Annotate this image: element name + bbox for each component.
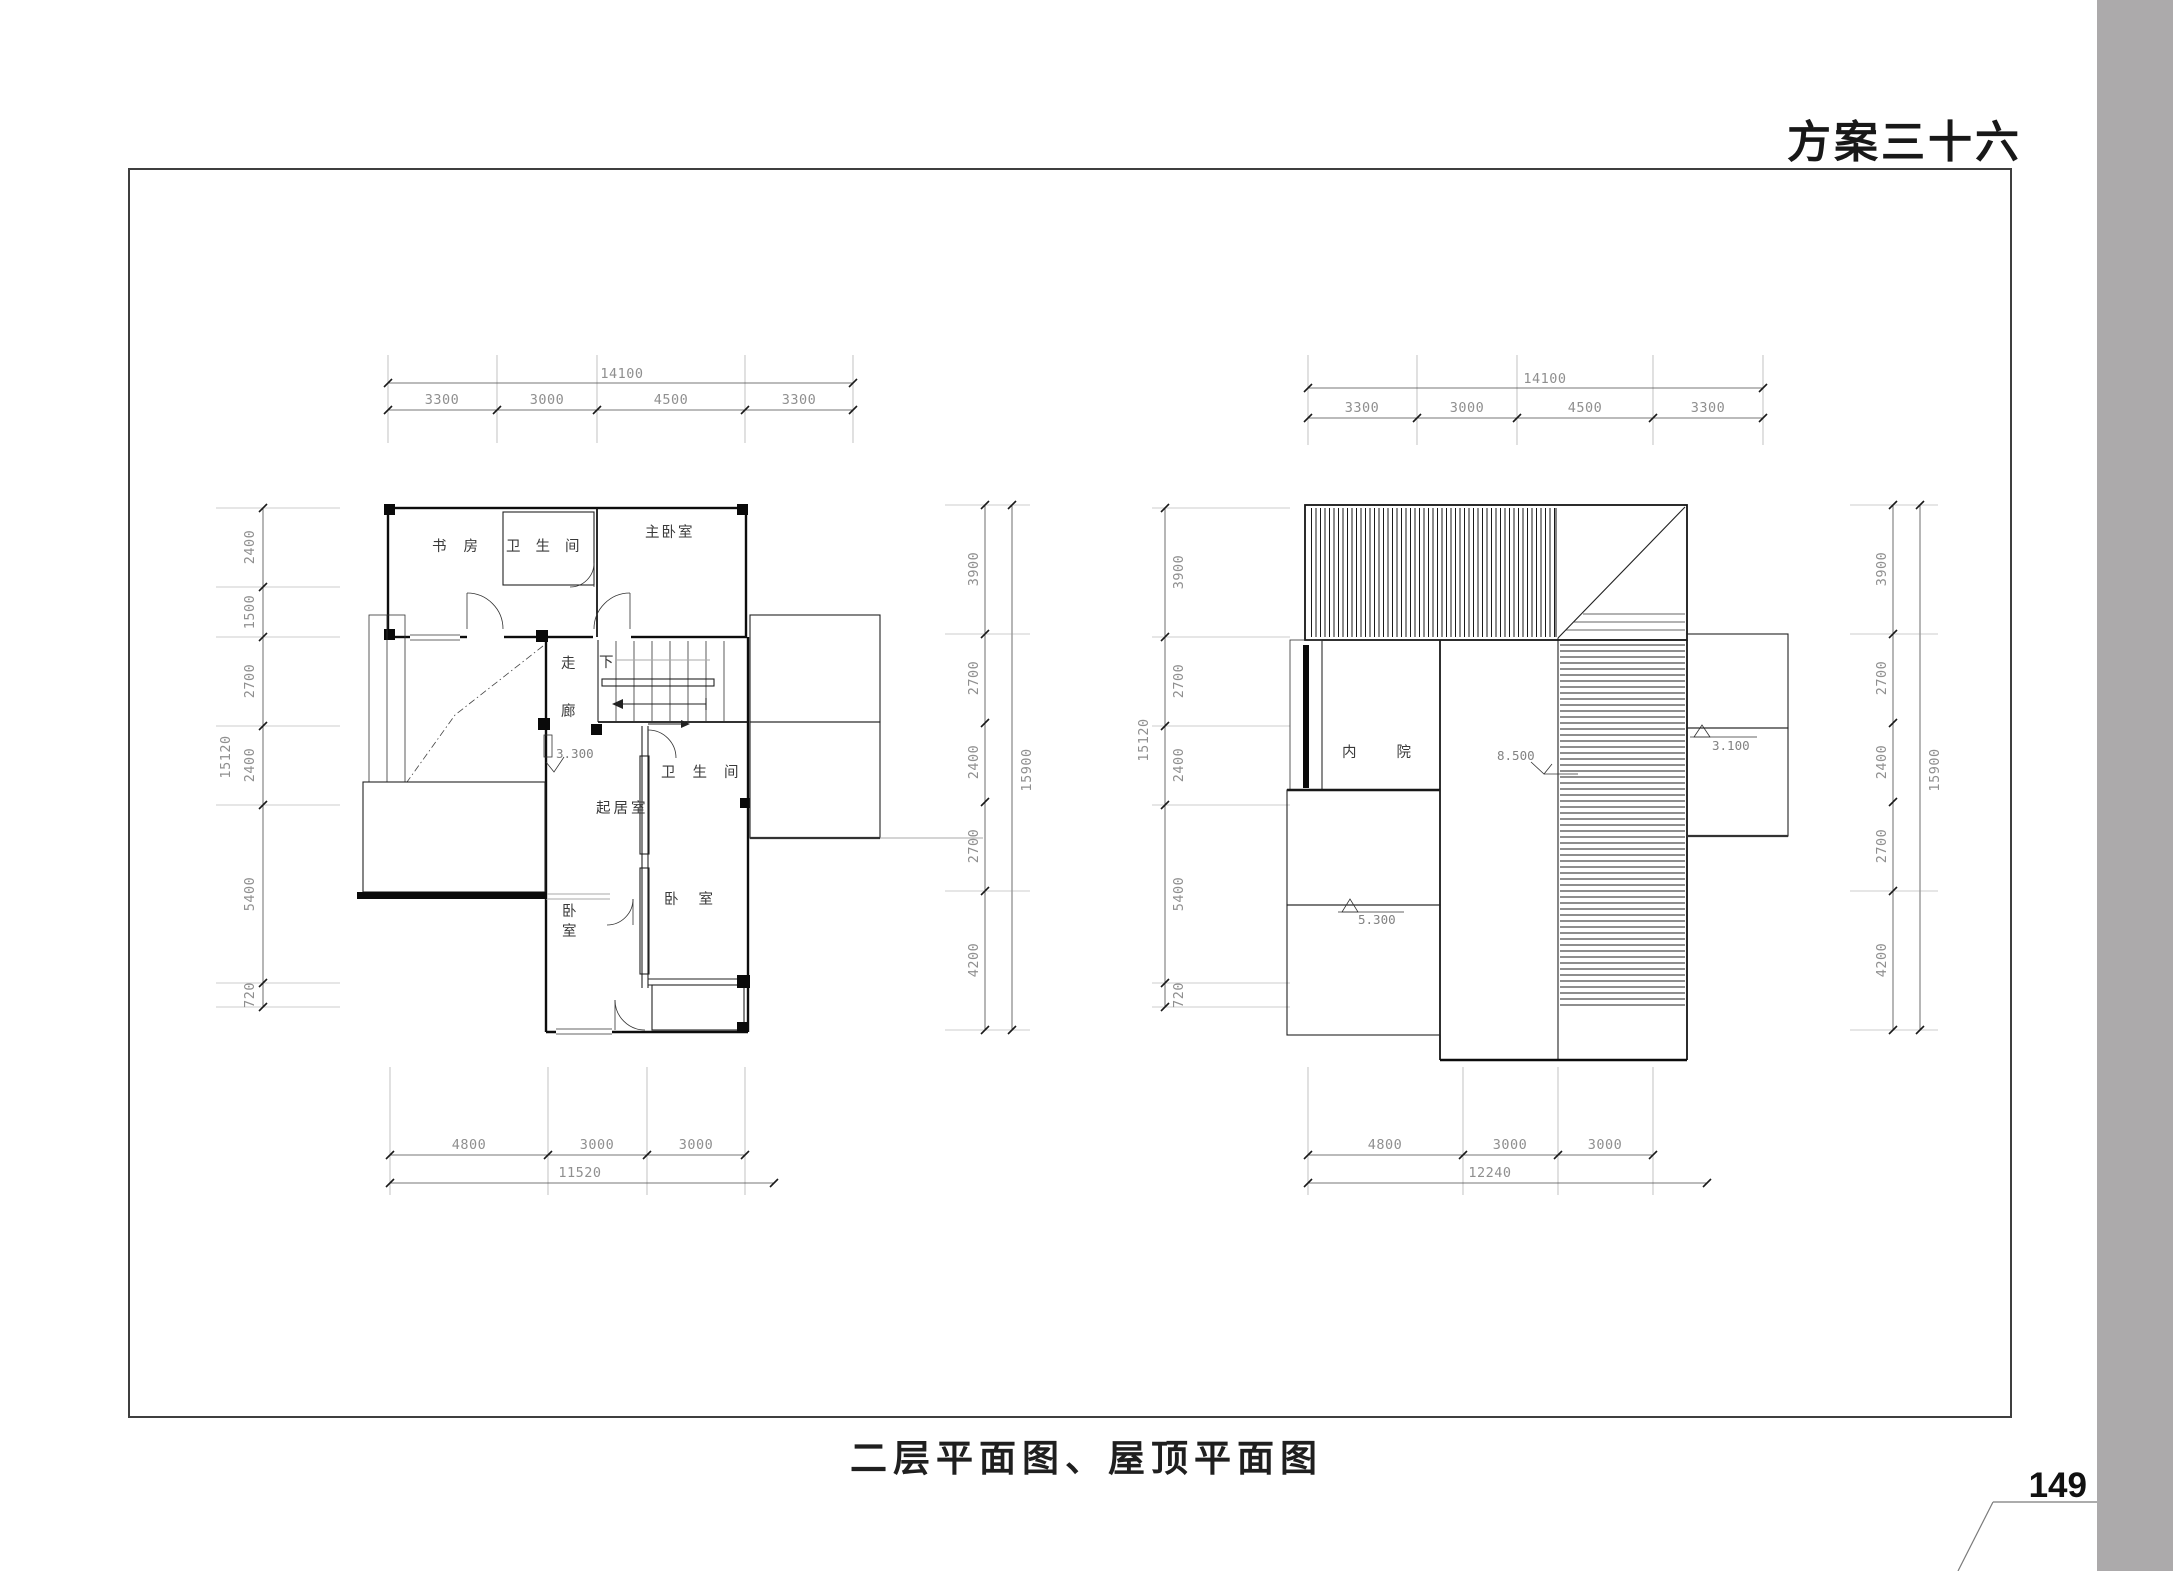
rp-dim-top-seg1: 3000 [1450,400,1485,416]
rp-dims-right: 3900 2700 2400 2700 4200 15900 [1850,501,1943,1034]
fp-room-living: 起居室 [596,800,649,817]
fp-dim-top-total: 14100 [600,366,643,382]
rp-dim-left-seg1: 2700 [1171,664,1187,699]
floor-plan: 14100 3300 3000 4500 3300 2400 1500 2700 [216,355,1035,1195]
drawing-caption: 二层平面图、屋顶平面图 [0,1428,2173,1482]
fp-dim-right-seg4: 4200 [966,943,982,978]
fp-stair-down: 下 [599,655,614,671]
rp-dim-right-seg4: 4200 [1874,943,1890,978]
fp-dim-right-seg0: 3900 [966,552,982,587]
corner-ornament [1958,1502,2097,1571]
fp-dims-bottom: 4800 3000 3000 11520 [386,1067,778,1195]
fp-dim-bot-seg1: 3000 [580,1137,615,1153]
fp-terrace-right [750,615,880,722]
rp-dim-top-seg2: 4500 [1568,400,1603,416]
rp-dim-right-seg0: 3900 [1874,552,1890,587]
rp-dims-bottom: 4800 3000 3000 12240 [1304,1067,1711,1195]
rp-dim-top-seg3: 3300 [1691,400,1726,416]
fp-dim-left-seg1: 1500 [242,595,258,630]
fp-dim-top-seg1: 3000 [530,392,565,408]
fp-dim-bot-seg0: 4800 [452,1137,487,1153]
fp-dims-top: 14100 3300 3000 4500 3300 [384,355,857,443]
fp-dim-top-seg2: 4500 [654,392,689,408]
page-number: 149 [2029,1466,2087,1506]
rp-dim-bot-seg0: 4800 [1368,1137,1403,1153]
rp-dim-left-seg2: 2400 [1171,748,1187,783]
fp-dim-bot-seg2: 3000 [679,1137,714,1153]
fp-room-study: 书房 [432,538,495,555]
fp-bedroom-left-char1: 卧 [562,903,577,920]
rp-roof: 5.300 3.100 8.500 内院 [1287,505,1788,1060]
rp-dim-left-seg3: 5400 [1171,877,1187,912]
drawing-canvas: 14100 3300 3000 4500 3300 2400 1500 2700 [0,0,2173,1571]
fp-dim-left-seg3: 2400 [242,748,258,783]
fp-dim-right-total: 15900 [1019,748,1035,791]
rp-ridge-hatch [1308,508,1556,637]
rp-dim-top-total: 14100 [1523,371,1566,387]
rp-left-slope-hatch [1287,790,1440,905]
fp-level-landing: 3.300 [556,746,594,761]
rp-dim-right-total: 15900 [1927,748,1943,791]
fp-dim-bot-total: 11520 [558,1165,601,1181]
fp-room-bath-top: 卫生间 [506,538,595,555]
fp-corridor-char1: 走 [561,655,576,672]
rp-dims-left: 3900 2700 2400 5400 720 15120 [1136,504,1290,1011]
fp-dim-top-seg0: 3300 [425,392,460,408]
fp-corridor-char2: 廊 [561,703,576,720]
rp-dim-right-seg1: 2700 [1874,661,1890,696]
rp-dim-top-seg0: 3300 [1345,400,1380,416]
rp-slope-hatch [1560,642,1685,1008]
rp-dim-left-seg4: 720 [1171,982,1187,1008]
rp-dim-left-seg0: 3900 [1171,555,1187,590]
fp-dim-left-seg4: 5400 [242,877,258,912]
fp-terrace-left [363,782,545,892]
fp-dim-left-seg5: 720 [242,982,258,1008]
rp-level-left: 5.300 [1358,912,1396,927]
rp-dim-bot-seg2: 3000 [1588,1137,1623,1153]
rp-level-right: 3.100 [1712,738,1750,753]
fp-dims-right: 3900 2700 2400 2700 4200 15900 [945,501,1035,1034]
rp-right-slope-hatch [1687,634,1788,728]
rp-level-ridge: 8.500 [1497,748,1535,763]
rp-dim-right-seg3: 2700 [1874,829,1890,864]
fp-room-master: 主卧室 [645,524,695,541]
fp-room-bath: 卫生间 [661,764,756,781]
fp-dim-right-seg2: 2400 [966,745,982,780]
fp-dim-right-seg1: 2700 [966,661,982,696]
fp-dim-right-seg3: 2700 [966,829,982,864]
rp-courtyard-label: 内院 [1342,744,1451,761]
rp-dim-left-total: 15120 [1136,718,1152,761]
fp-dim-top-seg3: 3300 [782,392,817,408]
fp-dim-left-seg0: 2400 [242,530,258,565]
fp-room-bedroom-right: 卧室 [664,891,733,908]
roof-plan: 14100 3300 3000 4500 3300 3900 2700 2400… [1136,355,1943,1195]
rp-dim-bot-total: 12240 [1468,1165,1511,1181]
rp-dim-bot-seg1: 3000 [1493,1137,1528,1153]
rp-dims-top: 14100 3300 3000 4500 3300 [1304,355,1767,445]
fp-bedroom-left-char2: 室 [562,923,577,940]
rp-dim-right-seg2: 2400 [1874,745,1890,780]
fp-dim-left-seg2: 2700 [242,664,258,699]
fp-dims-left: 2400 1500 2700 2400 5400 720 15120 [216,504,340,1011]
page: 方案三十六 14100 3300 3000 [0,0,2173,1571]
fp-dim-left-total: 15120 [218,735,234,778]
